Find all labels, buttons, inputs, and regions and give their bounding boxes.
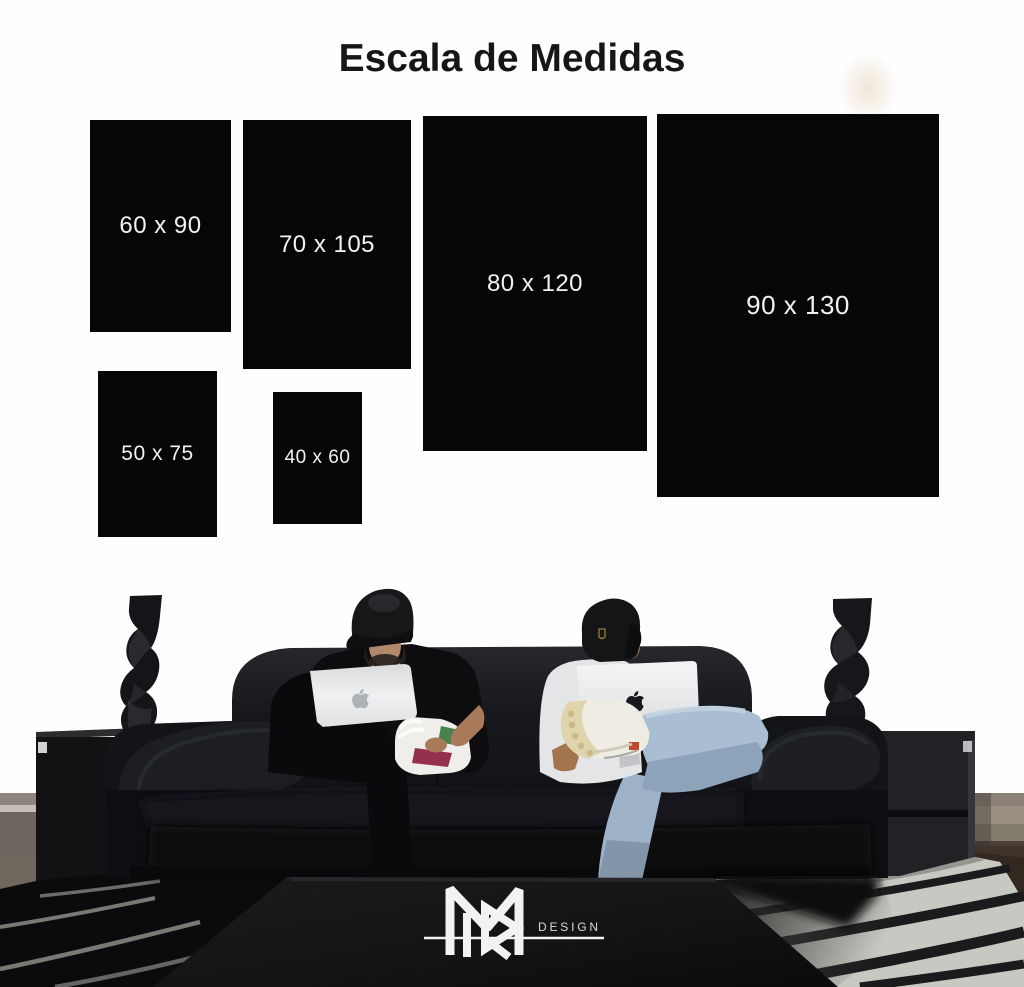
svg-text:DESIGN: DESIGN (538, 920, 601, 934)
